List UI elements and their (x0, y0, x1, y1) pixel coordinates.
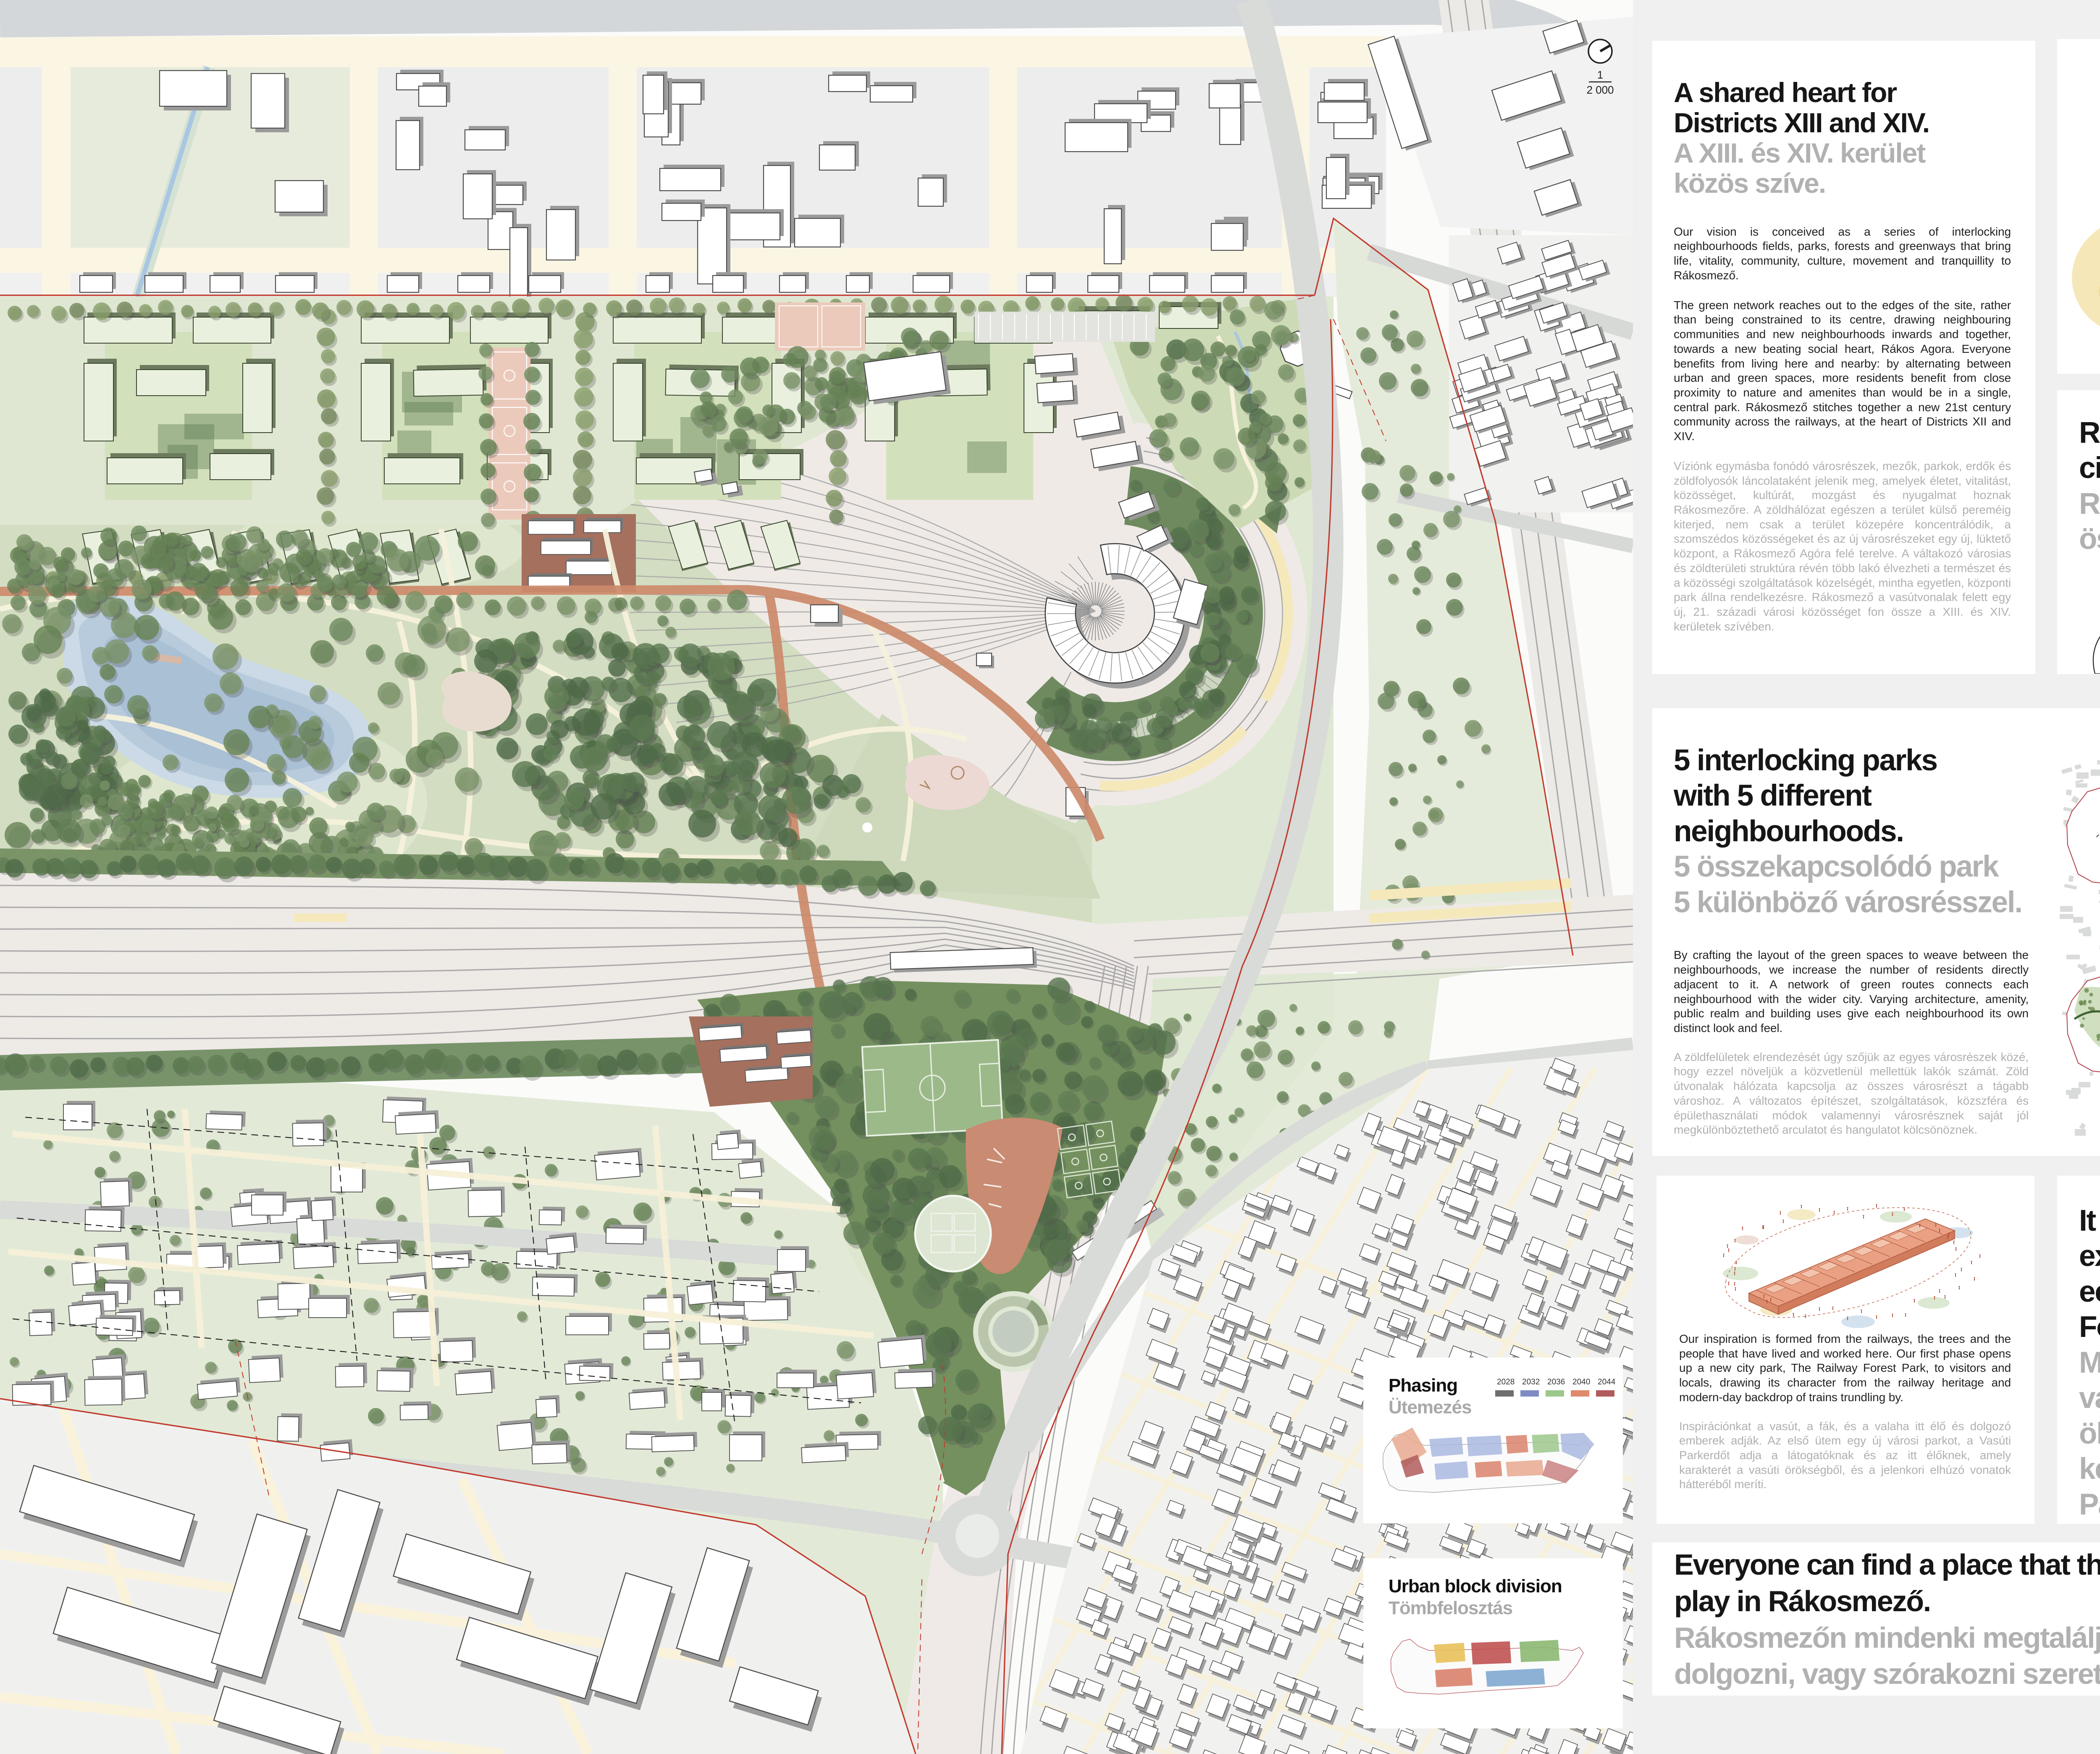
svg-text:1: 1 (1597, 68, 1603, 81)
svg-text:2 000: 2 000 (1586, 84, 1614, 96)
